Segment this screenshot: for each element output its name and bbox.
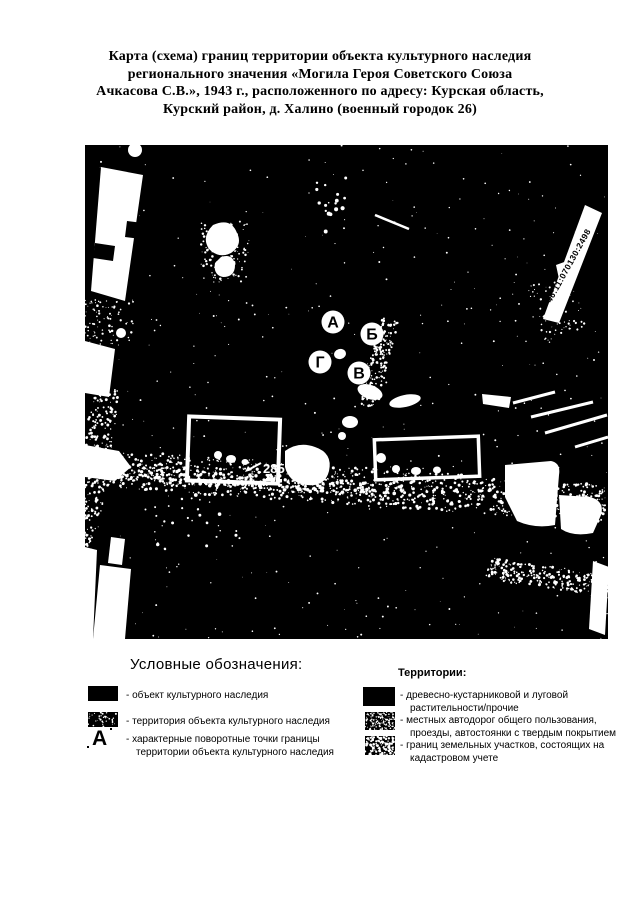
- map-point-letter: А: [327, 315, 339, 332]
- legend-letter-a-marker: А: [92, 728, 107, 750]
- document-page: Карта (схема) границ территории объекта …: [0, 0, 640, 905]
- map-point-marker: А: [322, 311, 345, 334]
- legend-heading: Условные обозначения:: [130, 656, 303, 673]
- legend-item-heritage-territory: - территория объекта культурного наследи…: [126, 715, 330, 728]
- legend-swatch-heritage-territory: [88, 712, 118, 727]
- map-point-marker: В: [348, 362, 371, 385]
- map-point-marker: Г: [309, 351, 332, 374]
- legend-item-roads: - местных автодорог общего пользования, …: [400, 714, 616, 740]
- legend-item-cadastral-parcels: - границ земельных участков, состоящих н…: [400, 739, 604, 765]
- page-title: Карта (схема) границ территории объекта …: [20, 48, 620, 118]
- map-point-marker: Б: [361, 323, 384, 346]
- speckled-swatch-icon: [88, 712, 118, 727]
- legend-item-boundary-points: - характерные поворотные точки границы т…: [126, 733, 334, 759]
- dot-icon: [87, 746, 89, 748]
- legend-heading-territories: Территории:: [398, 667, 466, 679]
- legend-swatch-cadastral-parcels: [365, 736, 395, 755]
- legend-swatch-heritage-object: [88, 686, 118, 701]
- map-image: 285 46:11:070130:2498 АБГВ: [85, 145, 608, 639]
- map-point-letter: Б: [366, 327, 378, 344]
- fine-speckled-swatch-icon: [365, 712, 395, 730]
- letter-a-glyph: А: [92, 727, 107, 750]
- dot-icon: [110, 728, 112, 730]
- aerial-map-figure: 285 46:11:070130:2498 АБГВ: [85, 145, 608, 639]
- legend-item-vegetation: - древесно-кустарниковой и луговой расти…: [400, 689, 568, 715]
- legend-item-heritage-object: - объект культурного наследия: [126, 689, 268, 702]
- map-point-letter: В: [353, 366, 365, 383]
- map-point-letter: Г: [315, 355, 324, 372]
- legend-swatch-roads: [365, 712, 395, 730]
- legend-swatch-vegetation: [363, 687, 395, 706]
- coarse-speckled-swatch-icon: [365, 736, 395, 755]
- house-number-text: 285: [263, 461, 285, 476]
